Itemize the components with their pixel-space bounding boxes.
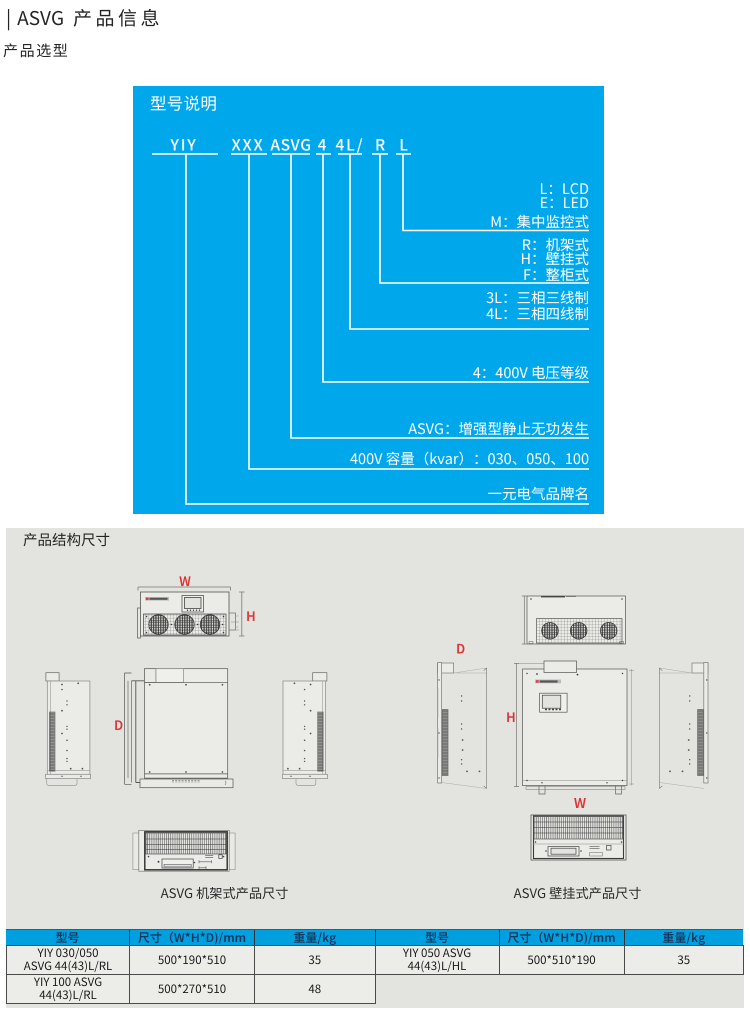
svg-text:W: W bbox=[574, 792, 586, 812]
svg-text:ASVG：增强型静止无功发生: ASVG：增强型静止无功发生 bbox=[408, 418, 589, 439]
svg-text:4：400V 电压等级: 4：400V 电压等级 bbox=[473, 362, 590, 383]
svg-text:400V 容量（kvar）：030、050、100: 400V 容量（kvar）：030、050、100 bbox=[350, 448, 589, 469]
svg-text:一元电气品牌名: 一元电气品牌名 bbox=[488, 483, 590, 504]
svg-text:4: 4 bbox=[318, 134, 329, 156]
svg-text:F：整柜式: F：整柜式 bbox=[523, 264, 590, 285]
svg-text:XXX: XXX bbox=[231, 134, 264, 156]
svg-text:H: H bbox=[246, 606, 256, 625]
svg-text:4L：三相四线制: 4L：三相四线制 bbox=[486, 303, 589, 324]
svg-text:ASVG: ASVG bbox=[270, 134, 311, 156]
svg-text:R: R bbox=[375, 134, 387, 156]
svg-text:M：集中监控式: M：集中监控式 bbox=[490, 211, 589, 232]
svg-text:H: H bbox=[506, 707, 516, 726]
svg-text:L: L bbox=[399, 134, 409, 156]
svg-text:E：LED: E：LED bbox=[540, 192, 589, 213]
svg-text:4L/: 4L/ bbox=[336, 134, 365, 156]
svg-text:D: D bbox=[456, 639, 465, 658]
svg-text:W: W bbox=[179, 571, 191, 590]
svg-text:型号说明: 型号说明 bbox=[150, 91, 217, 115]
svg-text:D: D bbox=[114, 715, 123, 734]
svg-text:YIY: YIY bbox=[169, 134, 197, 156]
